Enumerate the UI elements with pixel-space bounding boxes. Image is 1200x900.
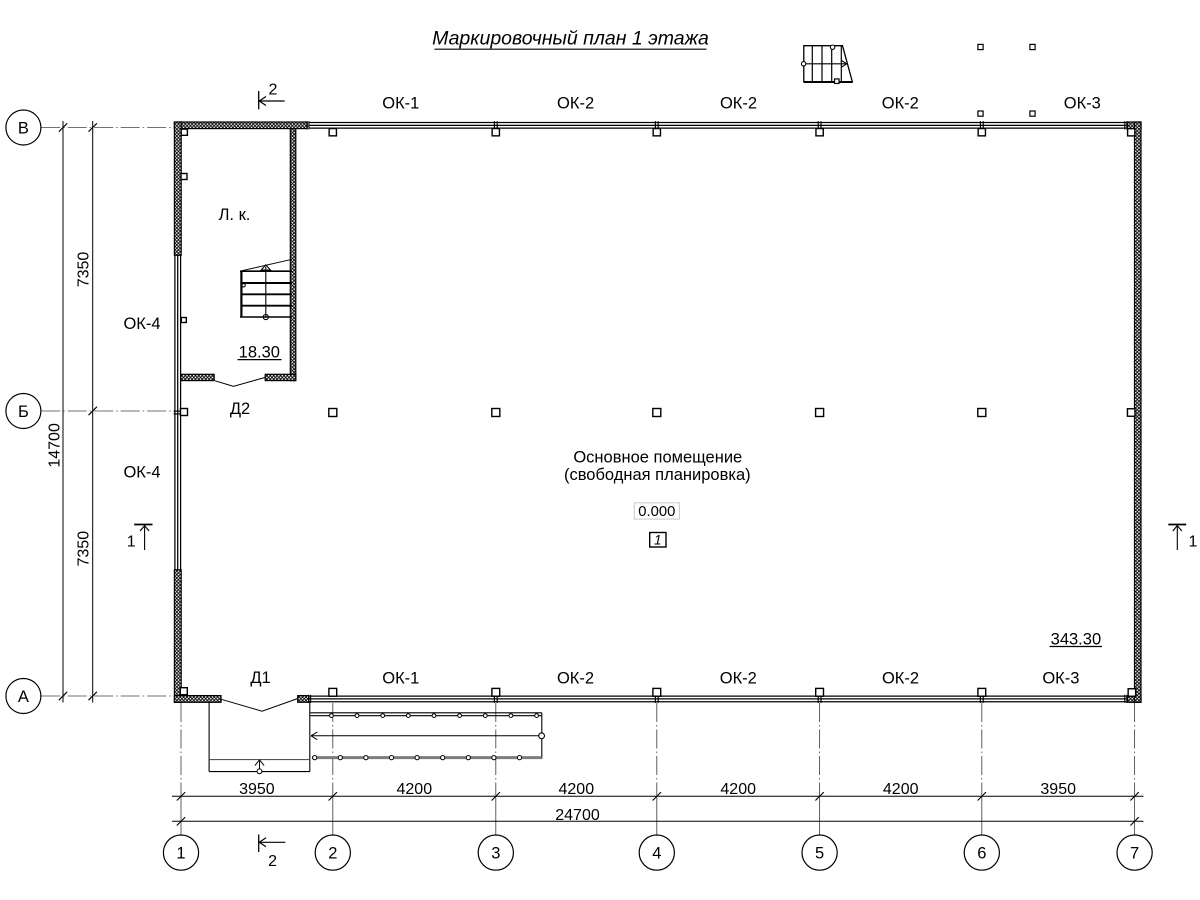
svg-text:Д2: Д2 [230, 400, 250, 418]
svg-text:1: 1 [1189, 534, 1198, 551]
svg-text:ОК-3: ОК-3 [1064, 95, 1101, 113]
svg-text:ОК-2: ОК-2 [720, 95, 757, 113]
svg-text:4: 4 [652, 844, 661, 862]
svg-text:Л. к.: Л. к. [219, 206, 251, 224]
svg-text:ОК-4: ОК-4 [123, 463, 160, 481]
svg-text:3950: 3950 [1040, 781, 1076, 798]
svg-text:4200: 4200 [397, 781, 433, 798]
svg-text:3950: 3950 [239, 781, 275, 798]
svg-text:4200: 4200 [720, 781, 756, 798]
svg-text:1: 1 [127, 534, 136, 551]
svg-text:6: 6 [977, 844, 986, 862]
svg-text:Д1: Д1 [250, 669, 270, 687]
svg-text:4200: 4200 [559, 781, 595, 798]
svg-text:ОК-2: ОК-2 [720, 669, 757, 687]
svg-text:2: 2 [328, 844, 337, 862]
svg-text:18.30: 18.30 [239, 344, 280, 362]
svg-text:ОК-1: ОК-1 [382, 95, 419, 113]
svg-text:7350: 7350 [76, 531, 93, 567]
svg-text:7: 7 [1130, 844, 1139, 862]
svg-text:2: 2 [269, 82, 278, 99]
svg-text:(свободная планировка): (свободная планировка) [564, 466, 751, 484]
svg-text:1: 1 [654, 532, 662, 547]
svg-text:0.000: 0.000 [638, 504, 675, 520]
svg-text:ОК-3: ОК-3 [1042, 669, 1079, 687]
svg-text:ОК-4: ОК-4 [123, 315, 160, 333]
svg-text:1: 1 [176, 844, 185, 862]
svg-text:В: В [18, 119, 29, 137]
svg-text:Б: Б [18, 403, 29, 421]
svg-text:Маркировочный план 1 этажа: Маркировочный план 1 этажа [432, 28, 709, 50]
svg-text:ОК-2: ОК-2 [557, 95, 594, 113]
svg-text:ОК-2: ОК-2 [882, 669, 919, 687]
svg-text:А: А [18, 688, 29, 706]
svg-text:343.30: 343.30 [1051, 630, 1101, 648]
svg-text:ОК-2: ОК-2 [882, 95, 919, 113]
svg-text:5: 5 [815, 844, 824, 862]
svg-text:14700: 14700 [47, 423, 64, 468]
svg-text:ОК-1: ОК-1 [382, 669, 419, 687]
svg-text:Основное помещение: Основное помещение [573, 448, 742, 466]
svg-text:7350: 7350 [76, 252, 93, 288]
svg-text:24700: 24700 [555, 807, 600, 824]
svg-text:ОК-2: ОК-2 [557, 669, 594, 687]
svg-text:2: 2 [268, 853, 277, 870]
svg-text:3: 3 [491, 844, 500, 862]
svg-text:4200: 4200 [883, 781, 919, 798]
